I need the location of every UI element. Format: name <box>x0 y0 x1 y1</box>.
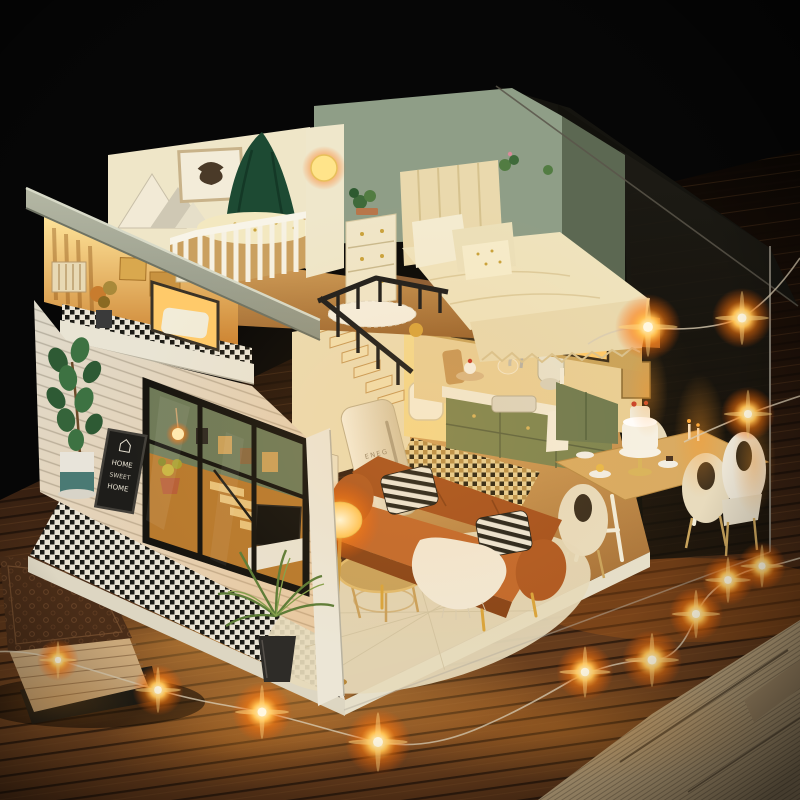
dollhouse-photo: ENEG ISSE <box>0 0 800 800</box>
photo-scene: ENEG ISSE <box>0 0 800 800</box>
vignette <box>0 0 800 800</box>
